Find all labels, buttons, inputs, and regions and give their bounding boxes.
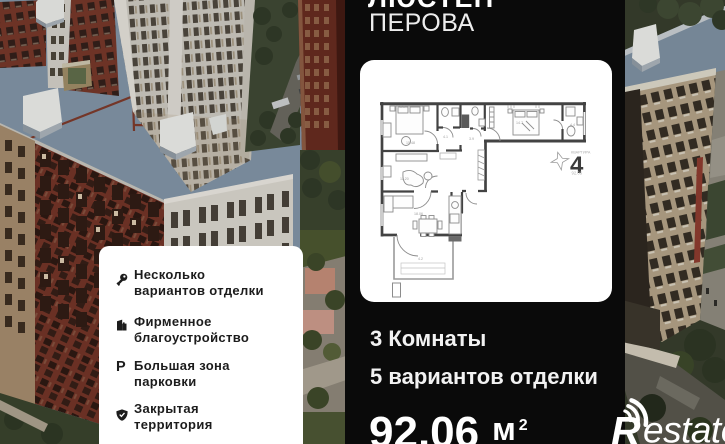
svg-text:11.20: 11.20 <box>400 177 409 181</box>
svg-text:4.4: 4.4 <box>570 123 575 127</box>
svg-text:18.06: 18.06 <box>414 212 423 216</box>
svg-text:14.7: 14.7 <box>516 121 523 125</box>
svg-text:4.2: 4.2 <box>418 257 423 261</box>
svg-text:15.48: 15.48 <box>406 141 415 145</box>
svg-text:4.1: 4.1 <box>443 135 448 139</box>
svg-text:3.9: 3.9 <box>469 137 474 141</box>
svg-text:estate: estate <box>643 410 725 444</box>
svg-text:92.06: 92.06 <box>572 171 583 176</box>
